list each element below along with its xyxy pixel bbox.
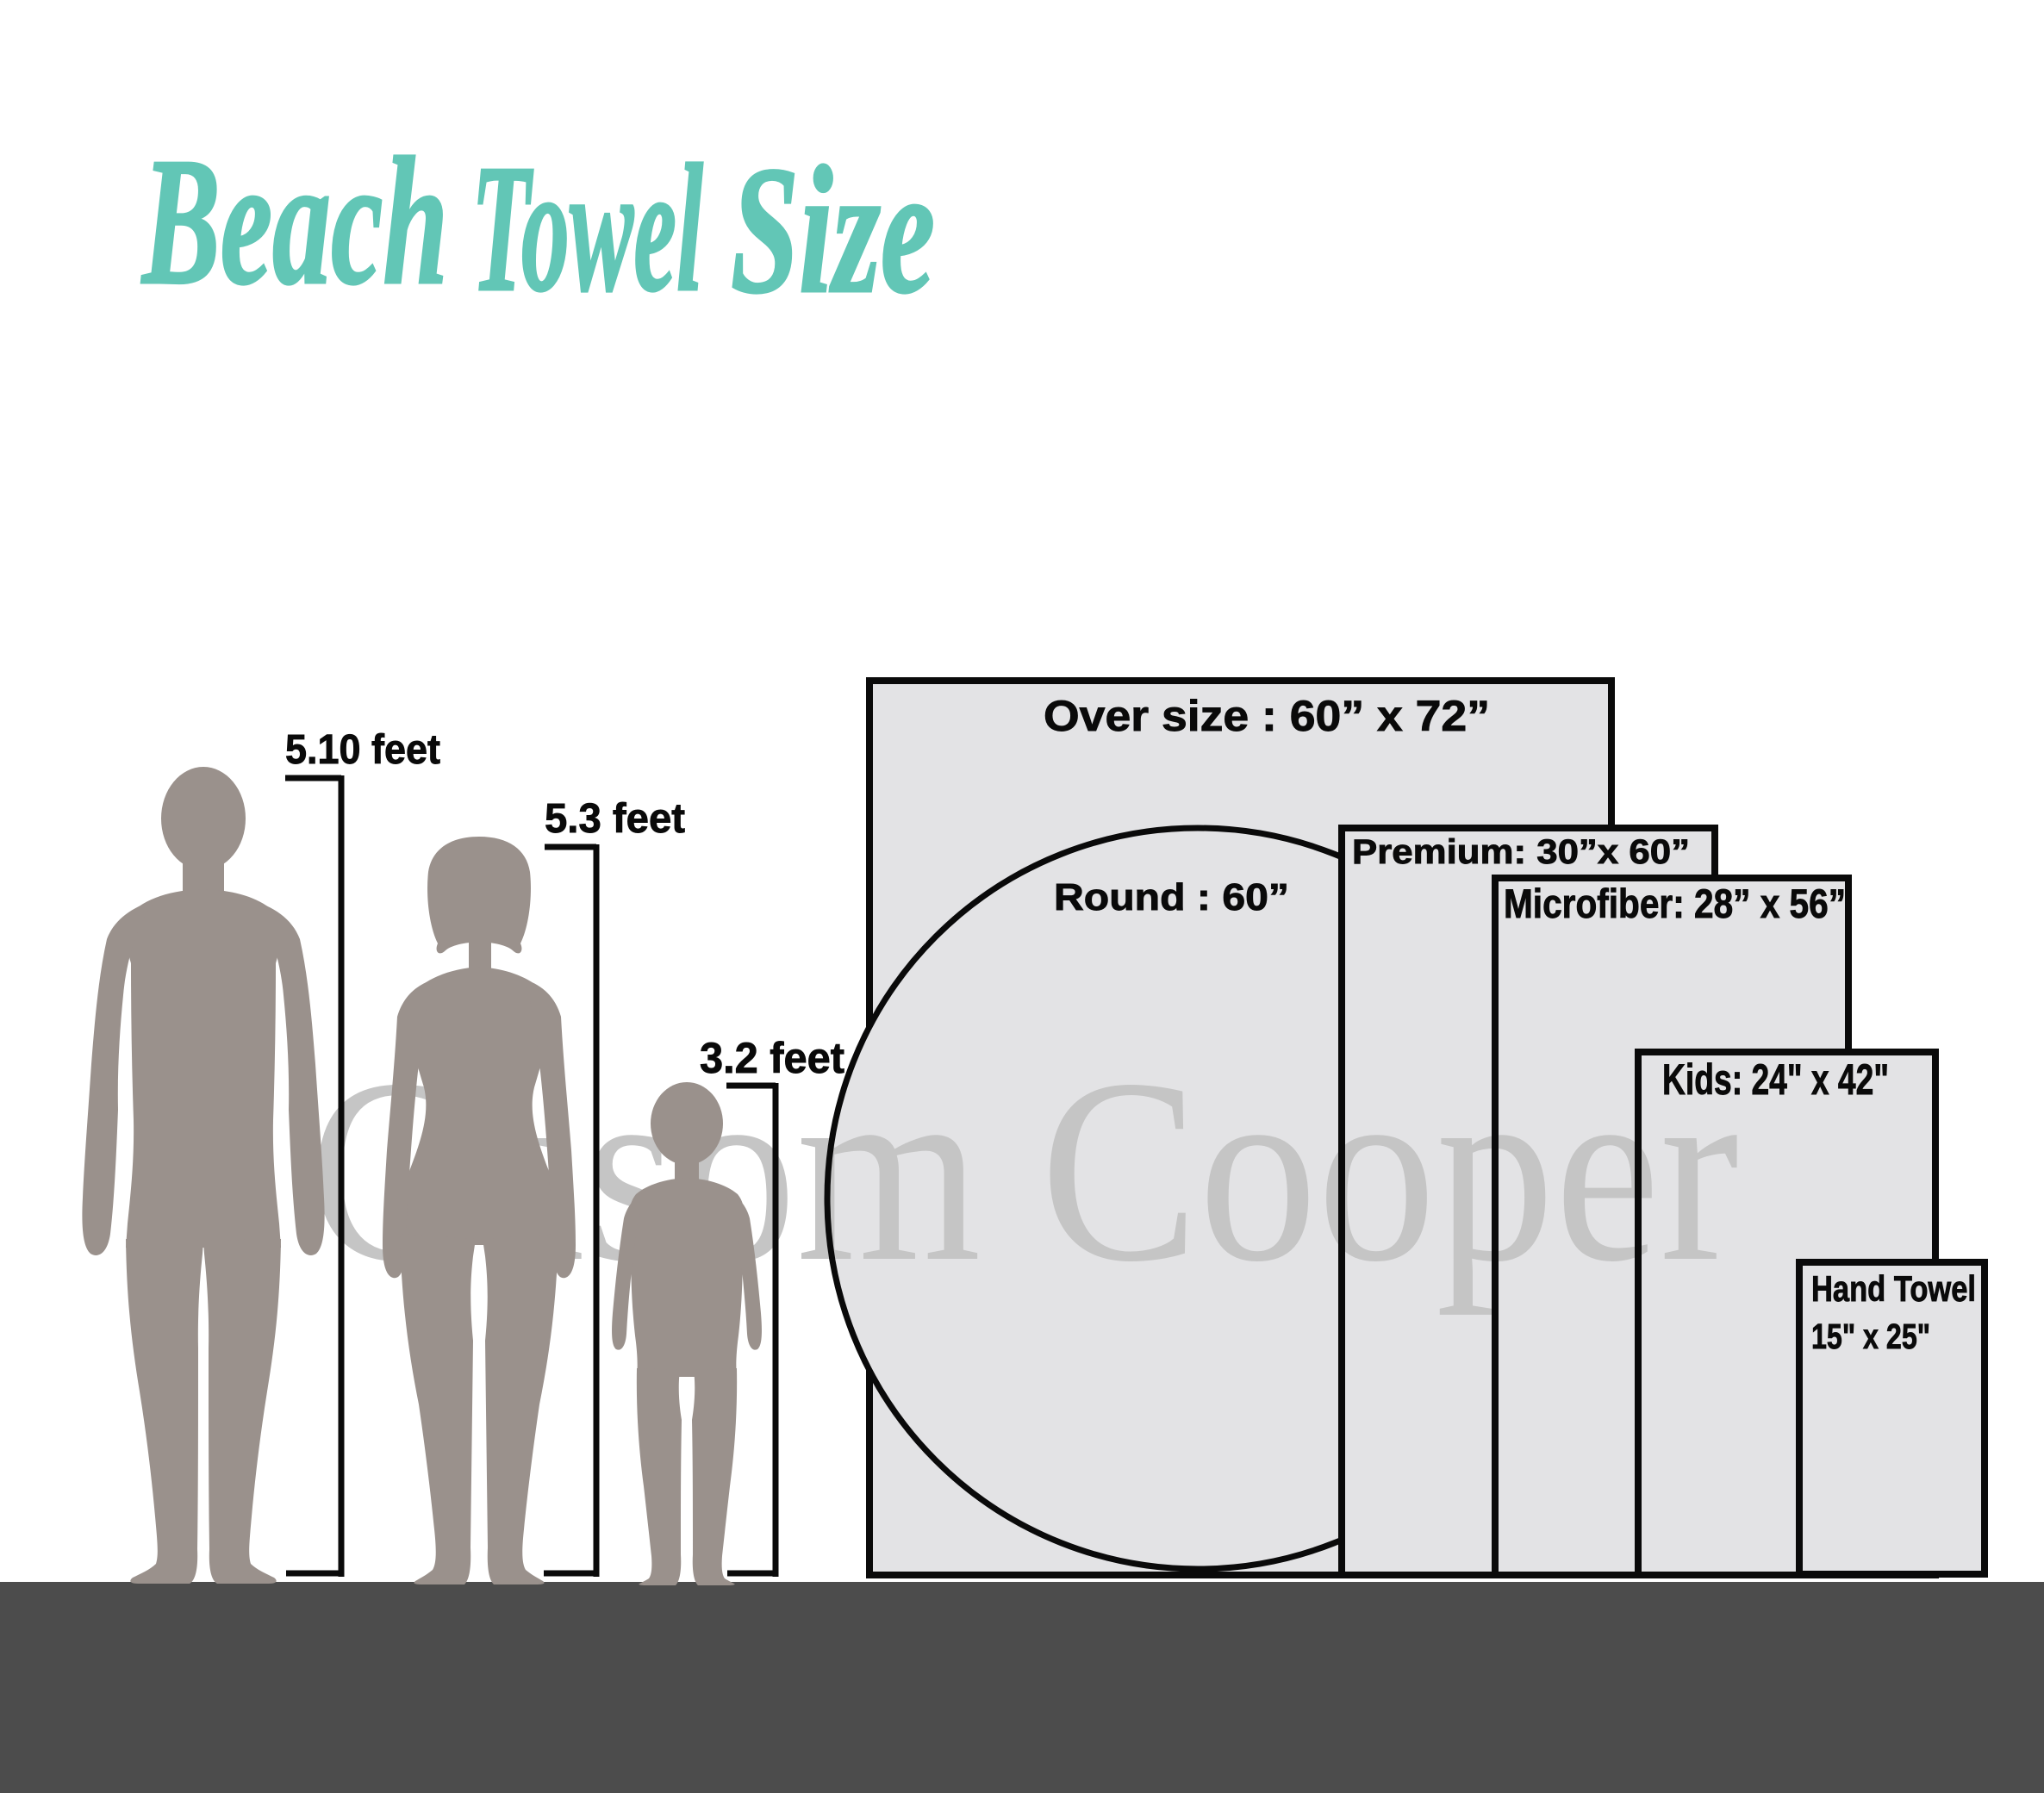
svg-text:Towel: Towel — [471, 127, 703, 329]
svg-text:Beach: Beach — [141, 120, 448, 322]
svg-text:5.3 feet: 5.3 feet — [545, 796, 685, 842]
svg-text:5.10 feet: 5.10 feet — [285, 727, 440, 773]
svg-text:Size: Size — [731, 128, 935, 331]
svg-text:Hand Towel: Hand Towel — [1811, 1268, 1976, 1309]
svg-text:Premium: 30”x 60”: Premium: 30”x 60” — [1352, 833, 1690, 871]
svg-text:Over size : 60” x 72”: Over size : 60” x 72” — [1044, 692, 1490, 740]
svg-text:Microfiber: 28” x 56”: Microfiber: 28” x 56” — [1504, 881, 1846, 926]
svg-text:Round : 60”: Round : 60” — [1054, 876, 1289, 918]
svg-text:15" x 25": 15" x 25" — [1811, 1317, 1930, 1356]
svg-text:3.2 feet: 3.2 feet — [700, 1034, 844, 1082]
svg-text:Kids: 24" x 42": Kids: 24" x 42" — [1662, 1055, 1889, 1104]
